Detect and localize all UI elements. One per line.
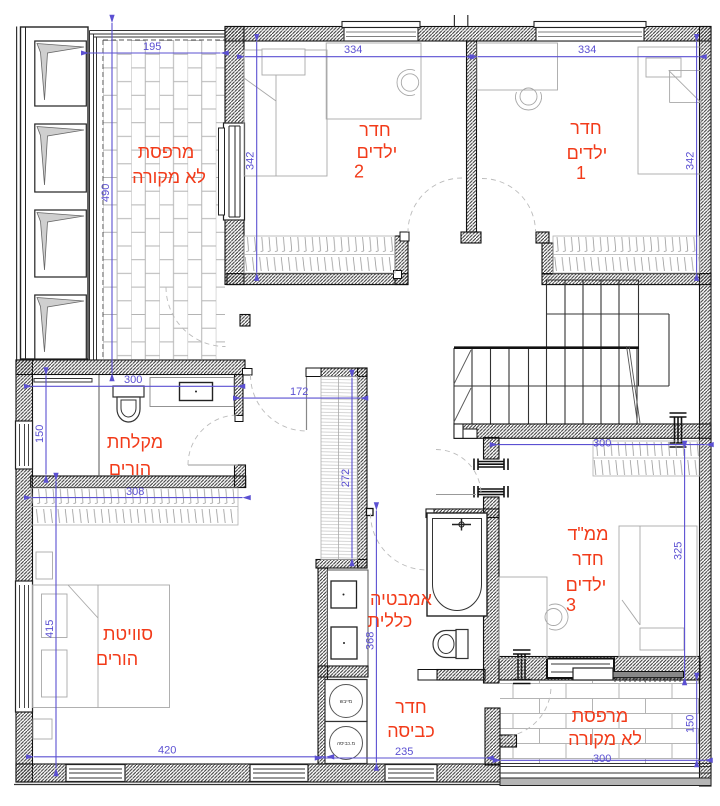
svg-text:ילדים: ילדים [567,143,608,163]
svg-text:1: 1 [576,163,586,183]
svg-text:ממ"ד: ממ"ד [567,524,608,544]
svg-text:150: 150 [685,715,697,733]
svg-text:235: 235 [395,746,413,758]
svg-text:334: 334 [344,44,362,56]
svg-text:מ.כביסה: מ.כביסה [337,741,356,747]
svg-text:לא מקורה: לא מקורה [132,167,206,187]
svg-text:מייבש: מייבש [340,699,353,705]
svg-text:308: 308 [126,486,144,498]
svg-text:ילדים: ילדים [566,575,607,595]
svg-text:הורים: הורים [96,649,138,669]
svg-text:לא מקורה: לא מקורה [568,729,642,749]
svg-text:420: 420 [158,745,176,757]
svg-text:אמבטיה: אמבטיה [370,589,433,609]
svg-text:ילדים: ילדים [357,142,398,162]
svg-text:כללית: כללית [368,611,413,631]
svg-text:2: 2 [354,162,364,182]
svg-text:325: 325 [673,542,685,560]
svg-text:חדר: חדר [359,120,390,140]
svg-text:הורים: הורים [109,459,151,479]
svg-text:490: 490 [100,184,112,202]
svg-text:172: 172 [290,386,308,398]
svg-text:342: 342 [245,152,257,170]
svg-text:342: 342 [685,152,697,170]
svg-text:חדר: חדר [572,549,603,569]
svg-text:300: 300 [593,753,611,765]
svg-text:300: 300 [124,374,142,386]
svg-text:סוויטת: סוויטת [103,624,153,644]
svg-text:מקלחת: מקלחת [107,432,163,452]
svg-text:כביסה: כביסה [387,721,435,741]
svg-text:חדר: חדר [570,118,601,138]
svg-text:195: 195 [143,41,161,53]
svg-text:368: 368 [364,632,376,650]
svg-text:272: 272 [340,469,352,487]
svg-text:334: 334 [578,44,596,56]
svg-text:חדר: חדר [395,697,426,717]
svg-text:מרפסת: מרפסת [138,142,195,162]
svg-text:150: 150 [34,425,46,443]
svg-text:מרפסת: מרפסת [572,706,629,726]
svg-text:415: 415 [44,620,56,638]
svg-text:3: 3 [566,595,576,615]
svg-text:300: 300 [593,438,611,450]
